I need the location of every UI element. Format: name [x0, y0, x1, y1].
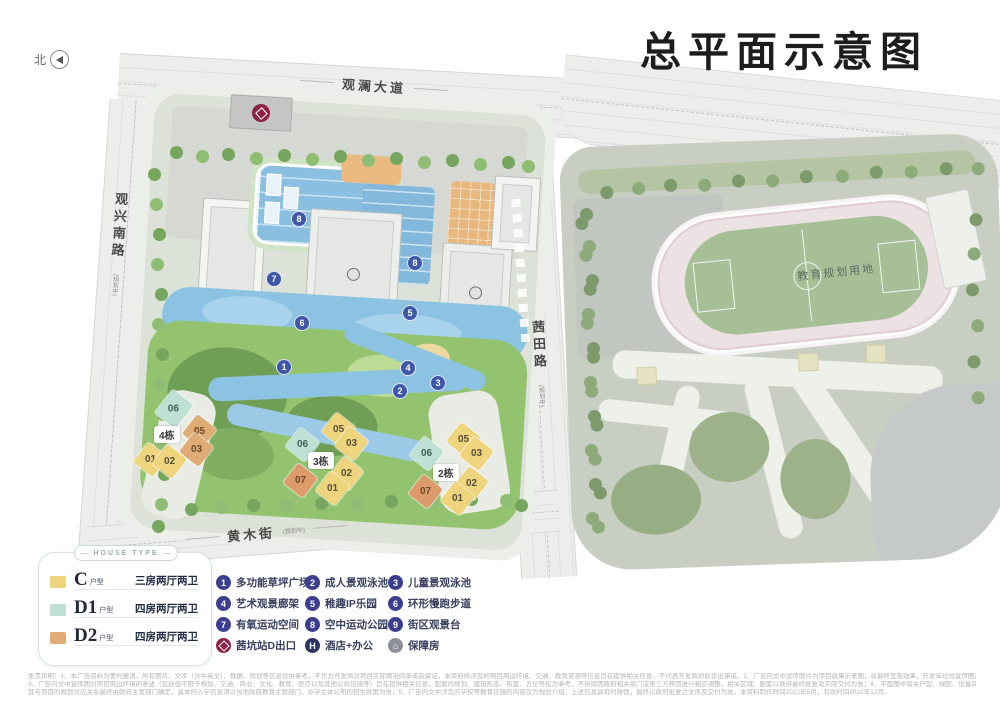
house-type-row: D2 户型 四房两厅两卫	[50, 624, 198, 646]
disclaimer-line: 免责声明：1、本广告资料为要约邀请，所有图片、文字（含中英文）、数据、规划等信息…	[28, 673, 976, 681]
amenity-number-icon: 6	[388, 596, 403, 611]
amenity-label: 成人景观泳池	[325, 575, 388, 590]
metro-icon	[216, 638, 231, 653]
type-code: C	[74, 571, 88, 588]
road-note: (规划中)	[110, 273, 118, 295]
disclaimer-line: 3、广告内文中宣传图对项目周边环境的表述（包括但不限于规划、交通、商业、文化、教…	[28, 681, 976, 689]
house-type-row: D1 户型 四房两厅两卫	[50, 596, 198, 618]
amenity-label: 街区观景台	[408, 617, 461, 632]
campus-green	[688, 411, 770, 484]
soccer-field: 教育规划用地	[680, 211, 934, 340]
amenity-label: 空中运动公园	[325, 617, 388, 632]
campus-green	[610, 463, 702, 536]
amenity-label: 稚趣IP乐园	[325, 596, 377, 611]
sport-court	[264, 201, 280, 224]
amenity-item: 5 稚趣IP乐园	[305, 596, 377, 611]
map-marker: 8	[407, 255, 423, 271]
amenity-item: ⌂ 保障房	[388, 638, 440, 653]
type-d1-swatch	[50, 604, 66, 616]
map-marker: 8	[291, 211, 307, 227]
tree-row	[170, 146, 183, 159]
map-marker: 5	[402, 305, 418, 321]
type-suffix: 户型	[99, 605, 113, 615]
deck-orange	[341, 154, 403, 186]
amenity-item: 茜坑站D出口	[216, 638, 296, 653]
education-parcel: 教育规划用地	[559, 132, 1000, 571]
housing-icon: ⌂	[388, 638, 403, 653]
road-name: 观兴南路	[109, 192, 129, 261]
amenity-number-icon: 7	[216, 617, 231, 632]
amenity-label: 环形慢跑步道	[408, 596, 471, 611]
amenity-number-icon: 5	[305, 596, 320, 611]
parcel-water-gray	[867, 379, 1000, 571]
road-note: (规划中)	[537, 384, 544, 406]
type-d2-swatch	[50, 632, 66, 644]
disclaimer-line: 其与项目的规划对应关系最终由政府主管部门确定，具体的入学信息须以当地政府教育主管…	[28, 689, 976, 697]
metro-logo-icon	[251, 103, 270, 122]
amenity-number-icon: 3	[388, 575, 403, 590]
sport-court	[283, 186, 299, 209]
type-desc: 四房两厅两卫	[135, 601, 198, 616]
map-marker: 6	[294, 315, 310, 331]
campus-pad	[798, 353, 819, 372]
disclaimer-text: 免责声明：1、本广告资料为要约邀请，所有图片、文字（含中英文）、数据、规划等信息…	[28, 673, 976, 698]
tree-row	[185, 503, 198, 516]
type-desc: 四房两厅两卫	[135, 629, 198, 644]
amenity-label: 茜坑站D出口	[236, 638, 296, 653]
type-suffix: 户型	[99, 633, 113, 643]
cluster-label: 2栋	[433, 464, 459, 481]
amenity-item: H 酒店+办公	[305, 638, 373, 653]
amenity-number-icon: 8	[305, 617, 320, 632]
map-marker: 4	[400, 360, 416, 376]
north-arrow-icon	[50, 50, 69, 69]
cluster-label: 3栋	[308, 452, 334, 469]
site-plan-page: 教育规划用地 观澜大道 观兴南路 (规划中) 茜田路 (规划中) 黄木街	[0, 0, 1000, 701]
tree-row	[969, 213, 982, 226]
type-c-swatch	[50, 576, 66, 588]
map-marker: 3	[430, 375, 446, 391]
amenity-item: 9 街区观景台	[388, 617, 461, 632]
amenity-label: 儿童景观泳池	[408, 575, 471, 590]
north-label: 北	[34, 51, 46, 68]
road-note: (规划中)	[283, 525, 306, 536]
amenity-item: 4 艺术观景廊架	[216, 596, 299, 611]
amenity-item: 6 环形慢跑步道	[388, 596, 471, 611]
map-marker: 1	[276, 359, 292, 375]
amenity-label: 保障房	[408, 638, 440, 653]
campus-path	[612, 350, 943, 395]
tree-row	[148, 168, 161, 181]
hotel-icon: H	[305, 638, 320, 653]
type-desc: 三房两厅两卫	[135, 573, 198, 588]
map-marker: 7	[266, 271, 282, 287]
house-type-row: C 户型 三房两厅两卫	[50, 568, 198, 590]
sport-court	[266, 173, 282, 196]
type-suffix: 户型	[90, 577, 104, 587]
north-indicator: 北	[34, 50, 69, 69]
amenity-item: 2 成人景观泳池	[305, 575, 388, 590]
page-title: 总平面示意图	[640, 18, 970, 78]
type-code: D2	[74, 627, 97, 644]
amenity-label: 有氧运动空间	[236, 617, 299, 632]
amenity-item: 1 多功能草坪广场	[216, 575, 310, 590]
cluster-label: 4栋	[154, 426, 180, 443]
amenity-item: 3 儿童景观泳池	[388, 575, 471, 590]
road-name: 茜田路	[530, 320, 548, 372]
amenity-number-icon: 1	[216, 575, 231, 590]
parcel-green-strip	[577, 150, 976, 195]
legend-header: HOUSE TYPE	[74, 545, 178, 561]
amenity-item: 8 空中运动公园	[305, 617, 388, 632]
amenity-label: 酒店+办公	[325, 638, 373, 653]
amenity-label: 多功能草坪广场	[236, 575, 310, 590]
type-code: D1	[74, 599, 97, 616]
amenity-number-icon: 4	[216, 596, 231, 611]
amenity-label: 艺术观景廊架	[236, 596, 299, 611]
campus-pad	[866, 344, 887, 363]
amenity-item: 7 有氧运动空间	[216, 617, 299, 632]
map-marker: 2	[392, 383, 408, 399]
campus-pad	[636, 366, 657, 385]
metro-exit-building	[229, 94, 293, 132]
tree-row	[580, 208, 593, 221]
amenity-number-icon: 9	[388, 617, 403, 632]
amenity-number-icon: 2	[305, 575, 320, 590]
